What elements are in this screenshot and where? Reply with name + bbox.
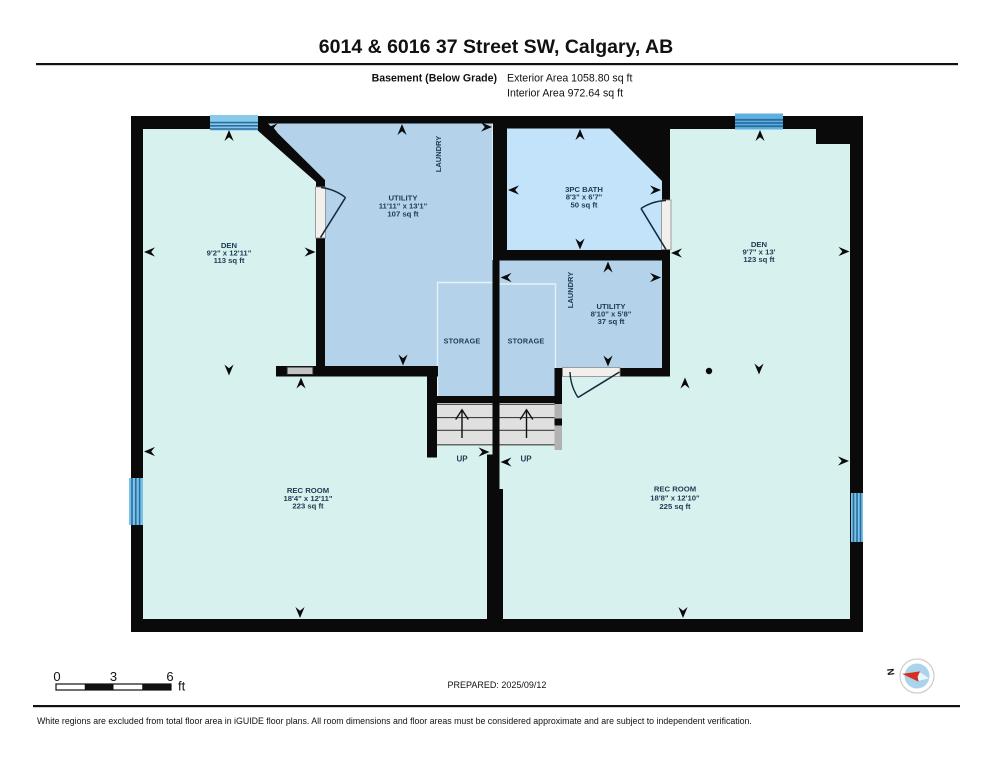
svg-text:REC ROOM: REC ROOM	[654, 485, 696, 494]
svg-text:Exterior Area 1058.80 sq ft: Exterior Area 1058.80 sq ft	[507, 73, 632, 85]
svg-text:50 sq ft: 50 sq ft	[571, 201, 598, 210]
svg-text:0: 0	[53, 669, 60, 684]
svg-text:STORAGE: STORAGE	[508, 337, 545, 346]
svg-text:UP: UP	[456, 455, 468, 464]
svg-text:Basement (Below Grade): Basement (Below Grade)	[372, 73, 497, 85]
svg-text:107 sq ft: 107 sq ft	[387, 210, 419, 219]
svg-text:6014 & 6016 37 Street SW, Calg: 6014 & 6016 37 Street SW, Calgary, AB	[319, 36, 673, 58]
svg-text:UP: UP	[520, 455, 532, 464]
svg-text:225 sq ft: 225 sq ft	[659, 502, 691, 511]
svg-text:STORAGE: STORAGE	[444, 337, 481, 346]
svg-text:37 sq ft: 37 sq ft	[598, 317, 625, 326]
svg-text:White regions are excluded fro: White regions are excluded from total fl…	[37, 716, 752, 726]
svg-text:LAUNDRY: LAUNDRY	[434, 136, 443, 172]
svg-text:123 sq ft: 123 sq ft	[743, 255, 775, 264]
svg-text:223 sq ft: 223 sq ft	[292, 502, 324, 511]
svg-text:PREPARED: 2025/09/12: PREPARED: 2025/09/12	[448, 680, 547, 690]
svg-text:LAUNDRY: LAUNDRY	[566, 272, 575, 308]
svg-text:6: 6	[166, 669, 173, 684]
svg-text:ft: ft	[178, 679, 186, 694]
svg-text:113 sq ft: 113 sq ft	[214, 256, 245, 265]
svg-text:3: 3	[110, 669, 117, 684]
svg-text:Interior Area 972.64 sq ft: Interior Area 972.64 sq ft	[507, 88, 623, 100]
